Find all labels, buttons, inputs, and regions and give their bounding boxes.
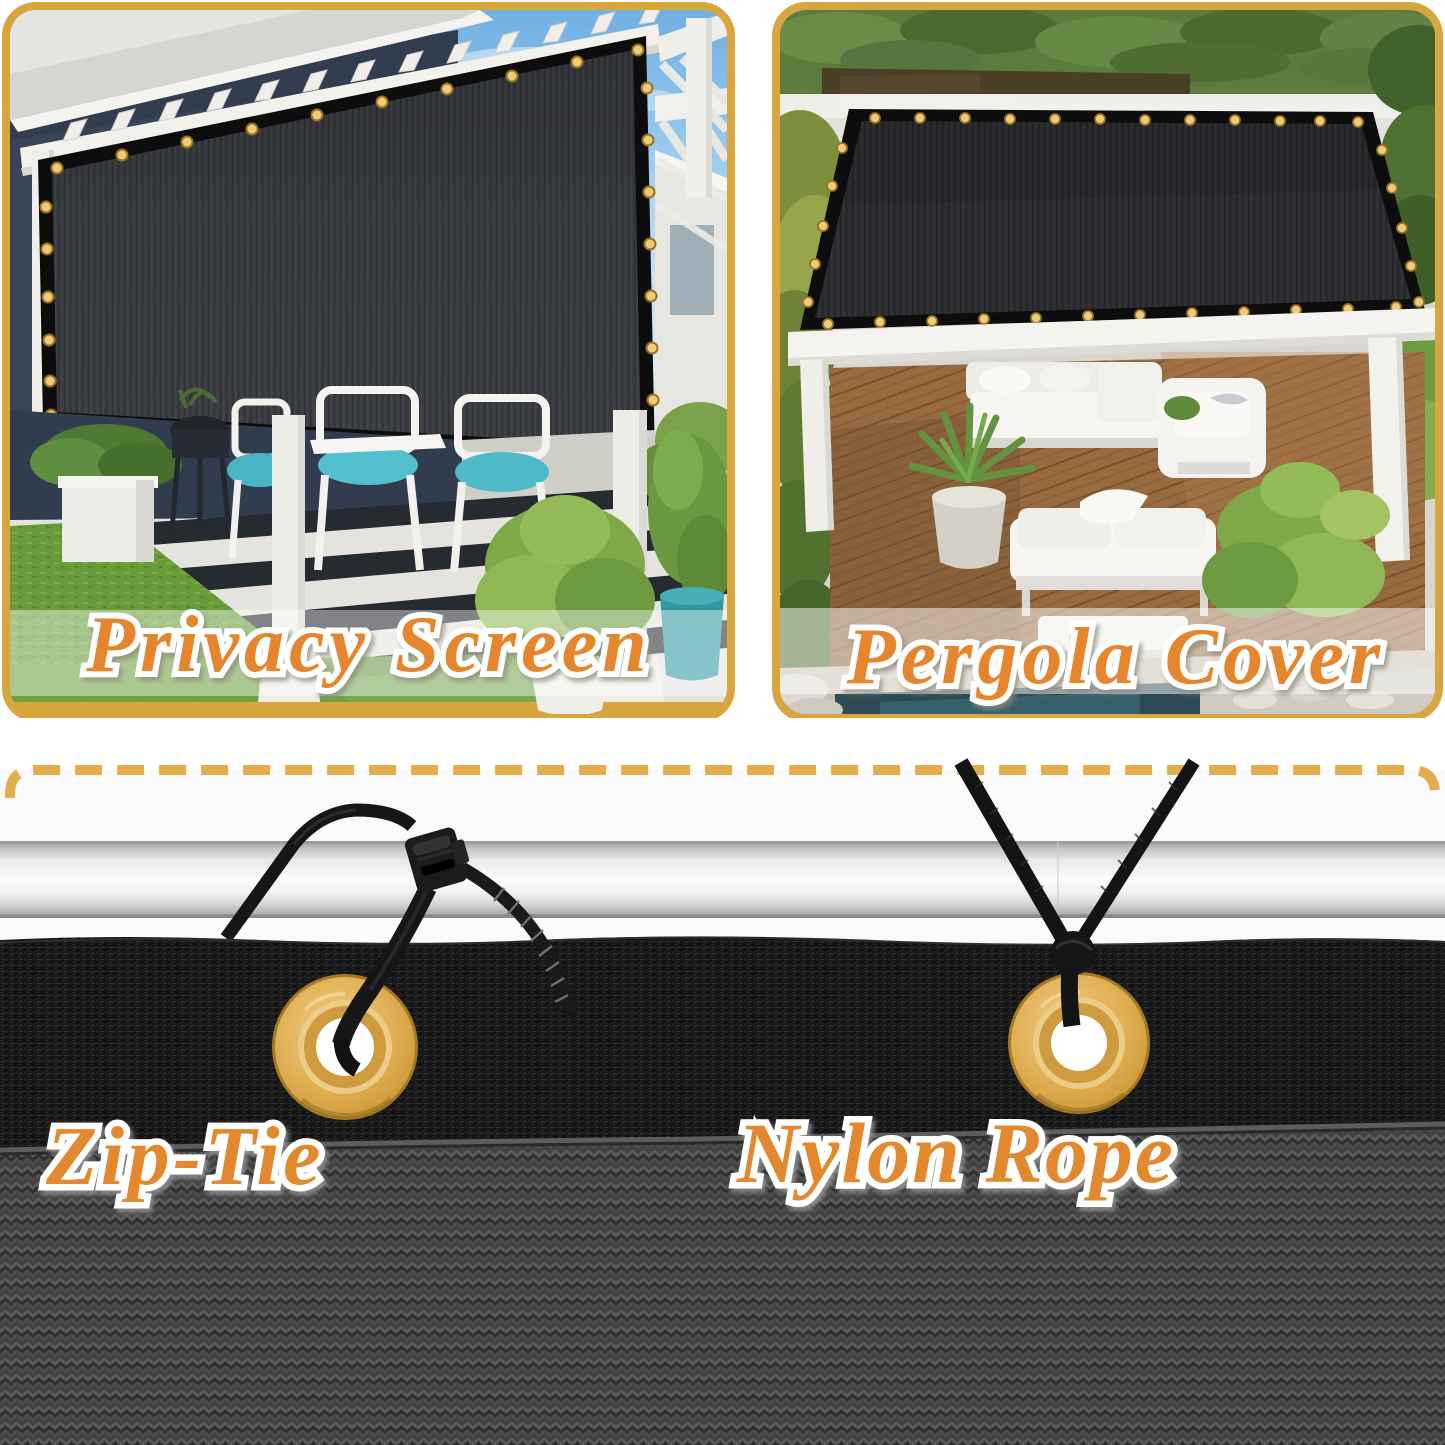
svg-text:Privacy Screen: Privacy Screen	[85, 601, 651, 689]
svg-text:Nylon Rope: Nylon Rope	[736, 1105, 1175, 1201]
svg-text:Pergola Cover: Pergola Cover	[846, 613, 1385, 701]
svg-text:Zip-Tie: Zip-Tie	[45, 1110, 324, 1203]
